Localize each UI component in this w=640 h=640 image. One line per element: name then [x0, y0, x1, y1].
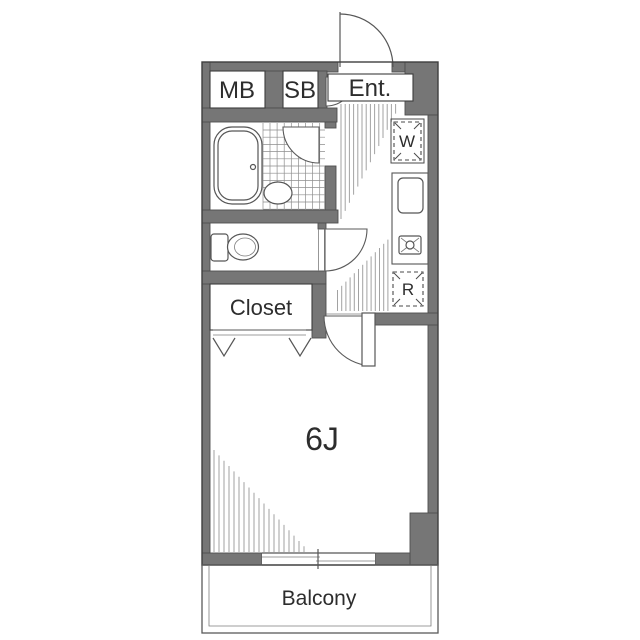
label-refrigerator: R [402, 280, 414, 299]
label-closet: Closet [230, 295, 292, 320]
wall-bathroom-bottom [202, 210, 338, 223]
wall-corridor-left-upper [325, 122, 336, 128]
wall-room-top-right [375, 313, 438, 325]
floor-plan: MB SB Ent. W R Closet 6J Balcony [0, 0, 640, 640]
kitchen-counter [392, 173, 428, 264]
toilet-tank [211, 234, 228, 261]
wall-top-mid [392, 62, 405, 72]
wall-bottom-left [202, 553, 262, 565]
wall-bottom-right-pillar [410, 513, 438, 565]
label-shoe-box: SB [284, 77, 316, 104]
wall-toilet-bottom [202, 271, 326, 284]
toilet-icon [211, 234, 259, 261]
label-entrance: Ent. [349, 75, 392, 102]
label-main-room: 6J [305, 421, 339, 457]
floor-plan-page: MB SB Ent. W R Closet 6J Balcony [0, 0, 640, 640]
kitchen-sink-icon [398, 178, 423, 213]
label-balcony: Balcony [282, 587, 357, 610]
wall-right [428, 115, 438, 565]
entrance-door-arc [340, 14, 393, 67]
wall-corridor-left-lower [325, 166, 336, 211]
stove-icon [399, 236, 421, 254]
label-meter-box: MB [219, 77, 255, 104]
wall-mb-sb-divider [265, 71, 283, 108]
washbasin-icon [264, 182, 292, 204]
bathtub-drain [251, 165, 256, 170]
wall-closet-pier [312, 284, 326, 338]
wall-toilet-right-stub [318, 223, 326, 229]
wall-bottom-right [375, 553, 410, 565]
room-door-leaf [362, 313, 375, 366]
wall-left [202, 62, 210, 565]
wall-bathroom-top [202, 108, 337, 122]
label-washer: W [399, 132, 415, 151]
